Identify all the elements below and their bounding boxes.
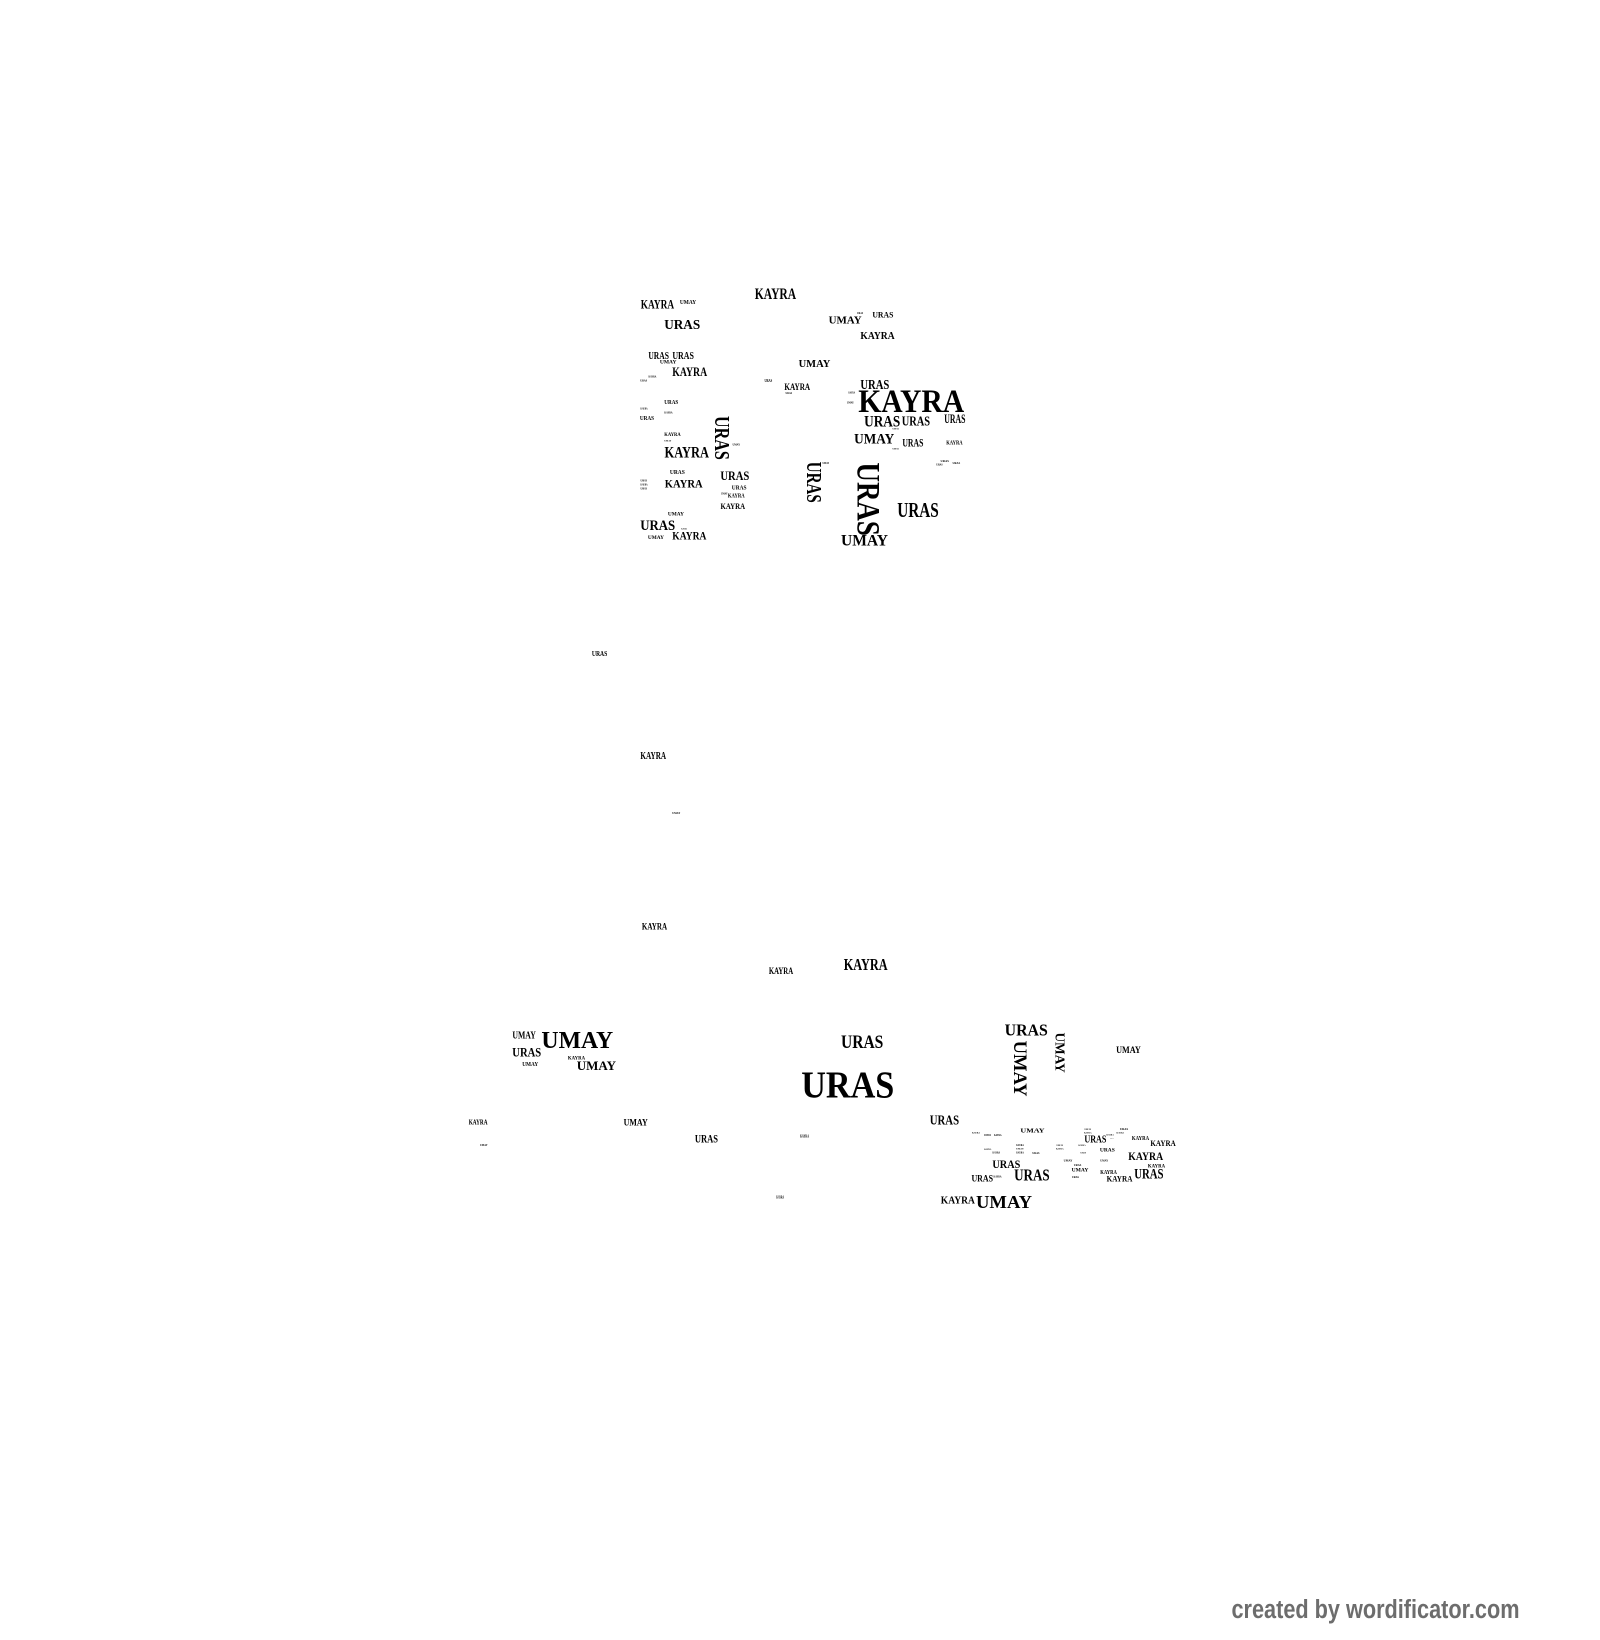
svg-text:URAS: URAS: [902, 437, 923, 449]
svg-text:UMAY: UMAY: [841, 533, 888, 550]
svg-text:URAS: URAS: [952, 461, 960, 465]
svg-text:UMAY: UMAY: [1051, 1033, 1067, 1073]
svg-text:KAYRA: KAYRA: [1107, 1174, 1133, 1184]
svg-text:URAS: URAS: [695, 1134, 718, 1146]
svg-text:UMAY: UMAY: [1116, 1045, 1141, 1055]
svg-text:KAYRA: KAYRA: [1016, 1152, 1024, 1155]
svg-text:UMAY: UMAY: [1080, 1152, 1086, 1155]
svg-text:URAS: URAS: [764, 379, 772, 383]
svg-text:KAYRA: KAYRA: [641, 482, 649, 486]
svg-text:URAS: URAS: [971, 1173, 993, 1183]
svg-text:UMAY: UMAY: [1110, 1136, 1114, 1139]
svg-text:KAYRA: KAYRA: [1078, 1144, 1085, 1147]
svg-text:URAS: URAS: [640, 379, 647, 383]
svg-text:KAYRA: KAYRA: [469, 1118, 488, 1126]
svg-text:created by wordificator.com: created by wordificator.com: [1232, 1594, 1520, 1624]
svg-text:UMAY: UMAY: [1072, 1167, 1089, 1173]
svg-text:KAYRA: KAYRA: [641, 297, 675, 312]
svg-text:UMAY: UMAY: [522, 1062, 539, 1068]
svg-text:KAYRA: KAYRA: [848, 392, 855, 395]
svg-text:UMAY: UMAY: [624, 1117, 648, 1127]
svg-text:URAS: URAS: [841, 1032, 883, 1053]
svg-text:KAYRA: KAYRA: [755, 286, 796, 303]
svg-text:KAYRA: KAYRA: [648, 375, 656, 378]
svg-text:KAYRA: KAYRA: [844, 955, 888, 974]
svg-text:UMAY: UMAY: [1056, 1144, 1063, 1147]
svg-text:KAYRA: KAYRA: [800, 1133, 810, 1138]
svg-text:URAS: URAS: [936, 464, 943, 467]
svg-text:URAS: URAS: [670, 470, 685, 476]
svg-text:UMAY: UMAY: [892, 448, 899, 451]
svg-text:KAYRA: KAYRA: [769, 967, 793, 977]
svg-text:UMAY: UMAY: [976, 1192, 1032, 1212]
svg-text:URAS: URAS: [897, 498, 939, 522]
svg-text:KAYRA: KAYRA: [994, 1133, 1002, 1137]
svg-text:KAYRA: KAYRA: [1106, 1134, 1113, 1137]
svg-text:KAYRA: KAYRA: [1116, 1131, 1124, 1134]
svg-text:KAYRA: KAYRA: [1150, 1138, 1176, 1148]
svg-text:URAS: URAS: [1084, 1135, 1106, 1146]
svg-text:KAYRA: KAYRA: [641, 408, 648, 411]
svg-text:UMAY: UMAY: [1064, 1160, 1073, 1163]
svg-text:KAYRA: KAYRA: [640, 751, 666, 762]
svg-text:UMAY: UMAY: [668, 513, 685, 518]
svg-text:KAYRA: KAYRA: [664, 432, 680, 438]
svg-text:URAS: URAS: [902, 414, 930, 429]
svg-text:KAYRA: KAYRA: [664, 410, 673, 414]
svg-text:KAYRA: KAYRA: [672, 365, 707, 379]
svg-text:UMAY: UMAY: [1016, 1147, 1024, 1150]
svg-text:UMAY: UMAY: [1100, 1159, 1108, 1162]
svg-text:KAYRA: KAYRA: [665, 444, 710, 461]
svg-text:URAS: URAS: [872, 310, 893, 320]
svg-text:URAS: URAS: [850, 462, 886, 535]
svg-text:KAYRA: KAYRA: [984, 1148, 991, 1151]
svg-text:UMAY: UMAY: [892, 428, 899, 431]
svg-text:UMAY: UMAY: [984, 1134, 991, 1137]
svg-text:URAS: URAS: [1005, 1020, 1048, 1039]
svg-text:URAS: URAS: [1032, 1152, 1040, 1155]
svg-text:URAS: URAS: [1134, 1166, 1163, 1183]
svg-text:KAYRA: KAYRA: [1056, 1148, 1064, 1151]
svg-text:URAS: URAS: [801, 1065, 894, 1107]
svg-text:URAS: URAS: [1014, 1166, 1050, 1185]
svg-text:UMAY: UMAY: [1084, 1128, 1091, 1131]
svg-text:KAYRA: KAYRA: [1132, 1136, 1150, 1142]
svg-text:URAS: URAS: [720, 469, 749, 483]
svg-text:KAYRA: KAYRA: [1128, 1149, 1163, 1163]
svg-text:URAS: URAS: [664, 399, 678, 406]
svg-text:UMAY: UMAY: [648, 535, 664, 541]
svg-text:UMAY: UMAY: [577, 1059, 616, 1073]
svg-text:UMAY: UMAY: [847, 401, 854, 404]
svg-text:URAS: URAS: [857, 311, 863, 315]
svg-text:URAS: URAS: [640, 518, 675, 534]
svg-text:URAS: URAS: [732, 486, 747, 492]
svg-text:KAYRA: KAYRA: [946, 439, 963, 446]
svg-text:KAYRA: KAYRA: [941, 1195, 975, 1206]
svg-text:URAS: URAS: [1072, 1176, 1080, 1179]
svg-text:KAYRA: KAYRA: [993, 1175, 1001, 1178]
svg-text:KAYRA: KAYRA: [720, 501, 745, 511]
svg-text:URAS: URAS: [664, 317, 700, 333]
svg-text:UMAY: UMAY: [641, 488, 648, 491]
svg-text:KAYRA: KAYRA: [665, 479, 703, 491]
svg-text:KAYRA: KAYRA: [972, 1132, 980, 1135]
svg-text:URAS: URAS: [930, 1114, 959, 1129]
svg-text:UMAY: UMAY: [822, 462, 829, 465]
svg-text:UMAY: UMAY: [1020, 1127, 1044, 1134]
svg-text:UMAY: UMAY: [480, 1143, 488, 1147]
svg-text:URAS: URAS: [592, 649, 607, 658]
svg-text:URAS: URAS: [786, 392, 793, 395]
svg-text:UMAY: UMAY: [541, 1027, 613, 1054]
svg-text:UMAY: UMAY: [672, 811, 681, 815]
svg-text:KAYRA: KAYRA: [860, 331, 895, 342]
svg-text:KAYRA: KAYRA: [728, 493, 745, 500]
svg-text:KAYRA: KAYRA: [776, 1195, 784, 1200]
svg-text:URAS: URAS: [944, 412, 965, 426]
svg-text:UMAY: UMAY: [799, 358, 831, 370]
svg-text:UMAY: UMAY: [732, 443, 740, 447]
svg-text:URAS: URAS: [941, 459, 950, 463]
svg-text:UMAY: UMAY: [664, 439, 671, 442]
svg-text:URAS: URAS: [1100, 1148, 1115, 1154]
svg-text:KAYRA: KAYRA: [672, 530, 707, 543]
svg-text:KAYRA: KAYRA: [642, 923, 667, 933]
svg-text:URAS: URAS: [640, 416, 655, 422]
svg-text:UMAY: UMAY: [1009, 1041, 1030, 1097]
svg-text:URAS: URAS: [512, 1045, 541, 1059]
svg-text:KAYRA: KAYRA: [993, 1152, 1001, 1155]
svg-text:UMAY: UMAY: [512, 1031, 536, 1042]
svg-text:UMAY: UMAY: [721, 492, 728, 495]
svg-text:URAS: URAS: [802, 462, 826, 503]
svg-text:UMAY: UMAY: [680, 300, 697, 306]
svg-text:UMAY: UMAY: [854, 432, 894, 448]
svg-text:URAS: URAS: [710, 416, 734, 460]
svg-text:UMAY: UMAY: [829, 315, 862, 327]
